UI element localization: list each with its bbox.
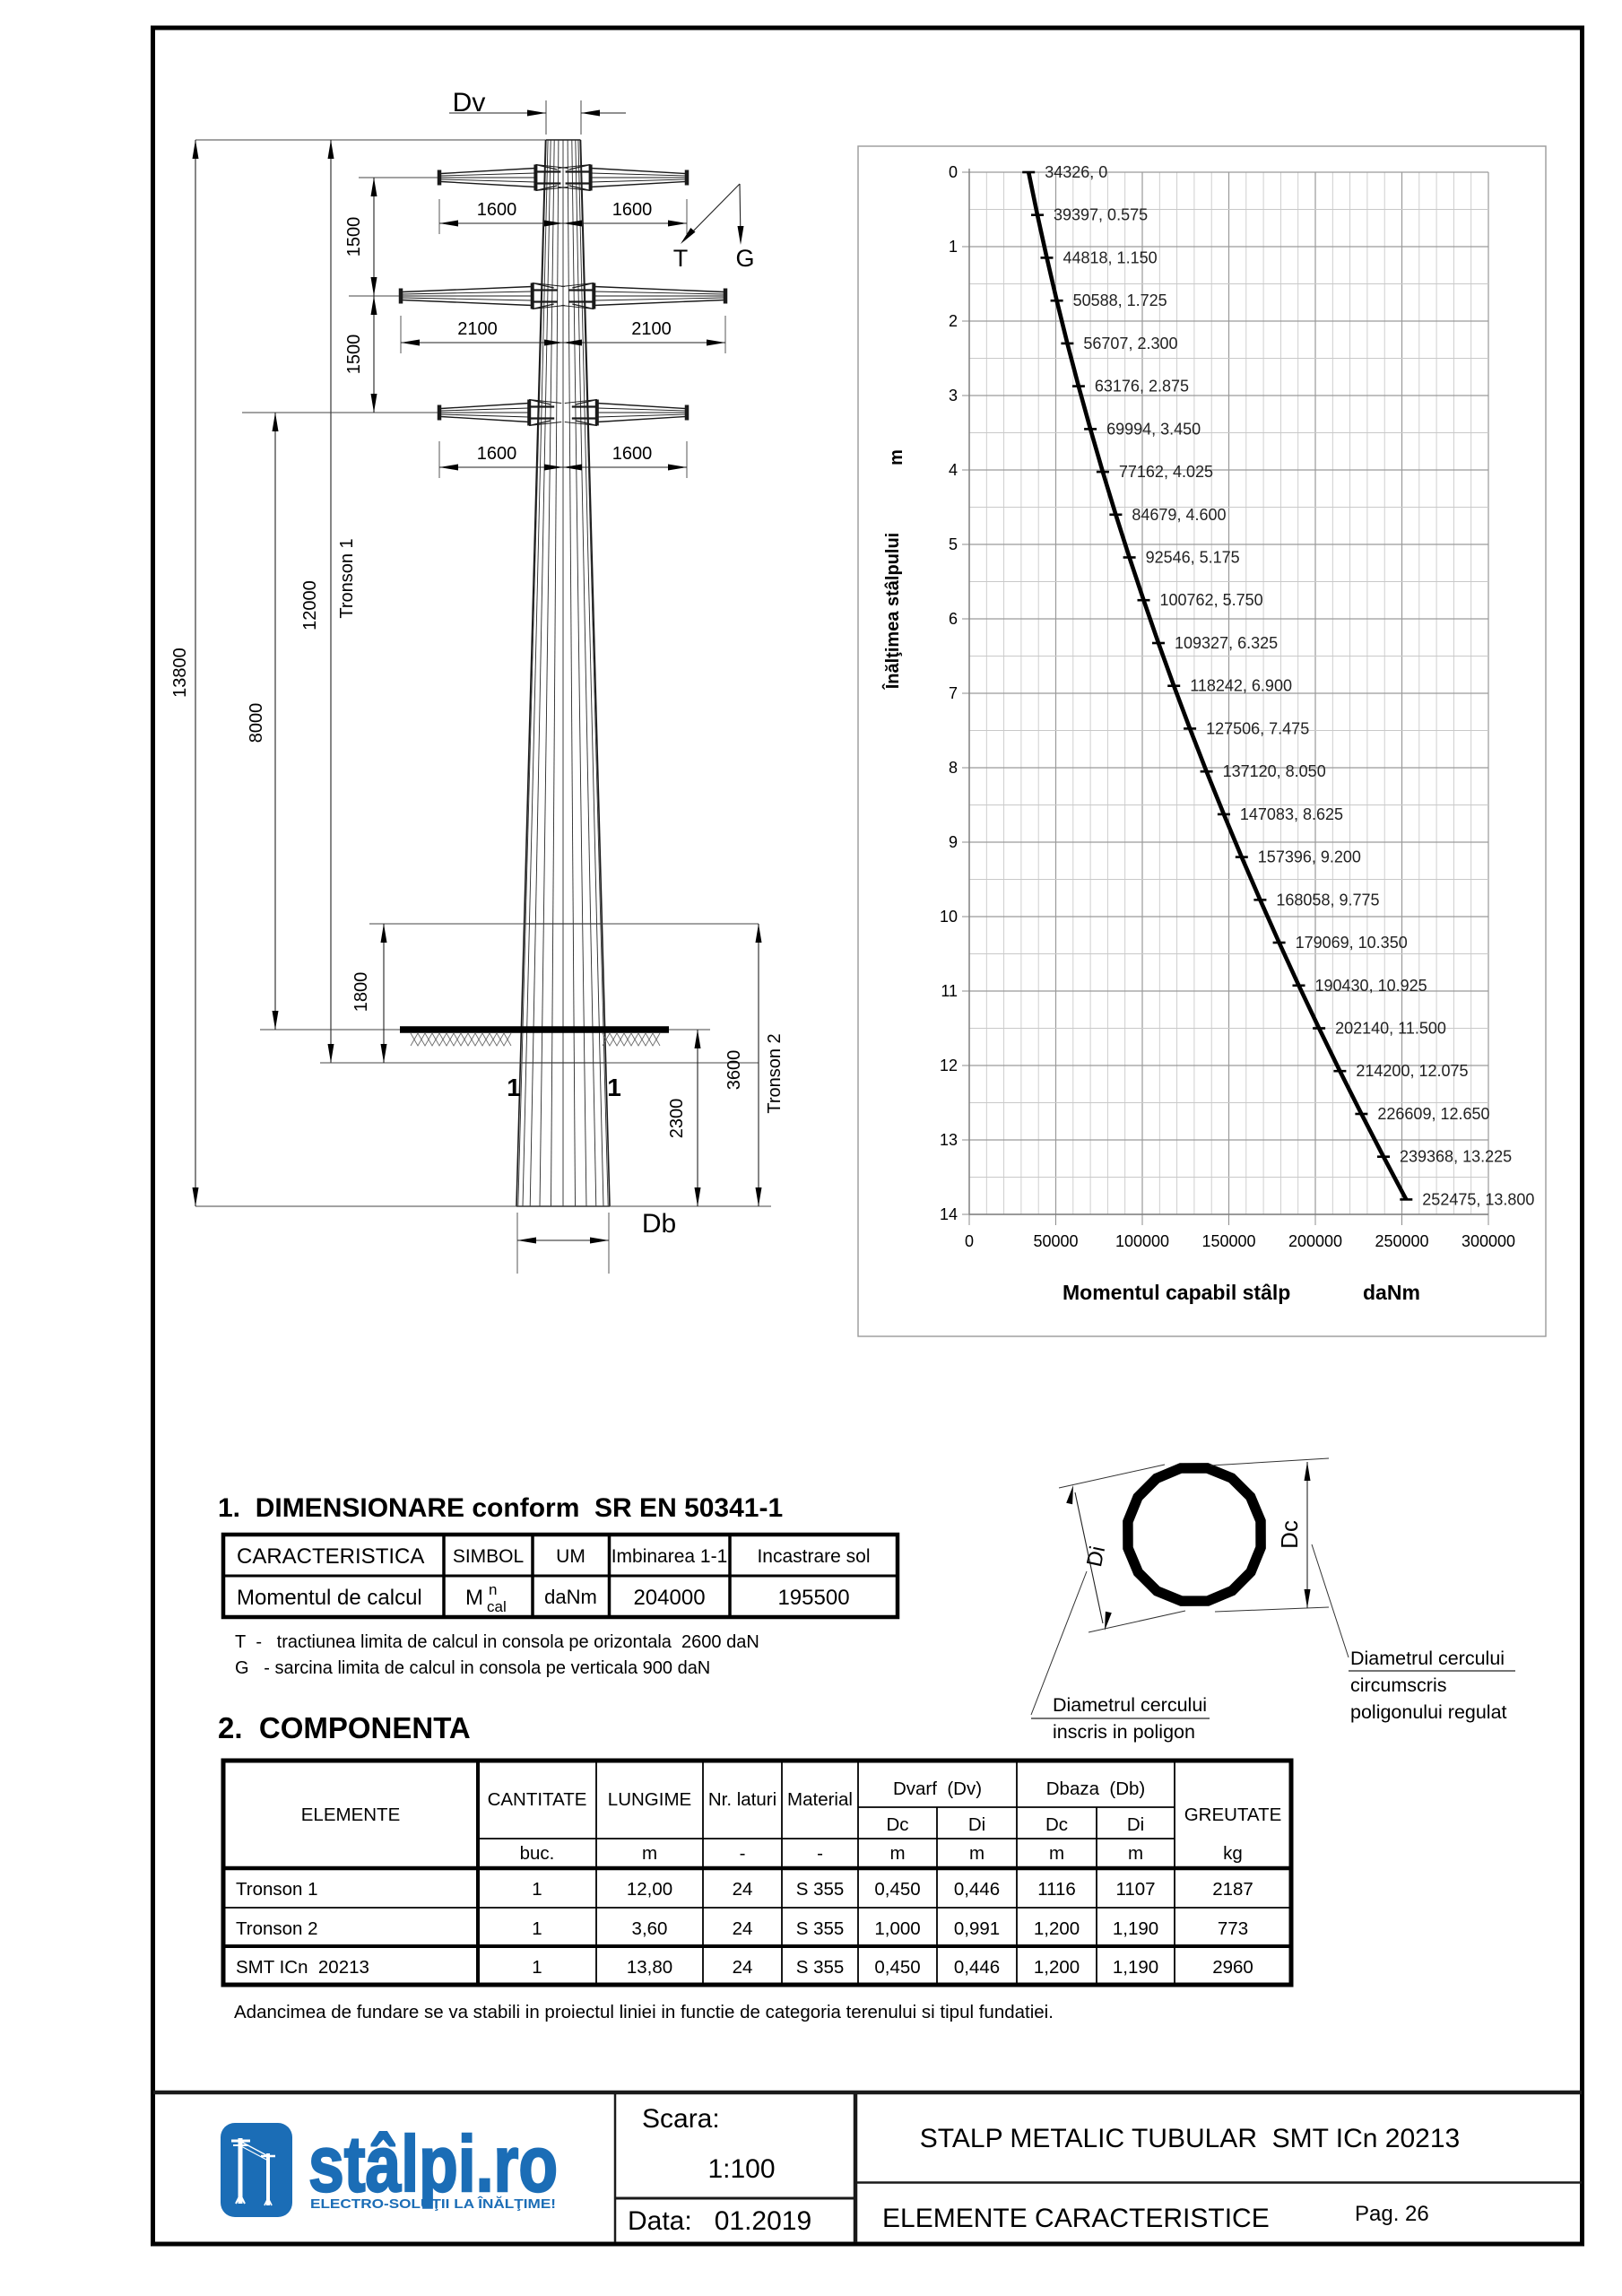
svg-text:inscris in poligon: inscris in poligon [1053,1721,1195,1743]
svg-text:50588, 1.725: 50588, 1.725 [1073,291,1167,309]
svg-text:m: m [887,449,906,465]
svg-text:10: 10 [940,908,958,926]
svg-text:300000: 300000 [1462,1232,1515,1250]
svg-text:0,446: 0,446 [954,1957,1000,1978]
svg-text:13,80: 13,80 [627,1957,672,1978]
svg-text:T - tractiunea limita de ca: T - tractiunea limita de calcul in conso… [235,1632,759,1652]
svg-text:1: 1 [532,1918,542,1939]
svg-text:137120, 8.050: 137120, 8.050 [1223,762,1326,780]
svg-text:12000: 12000 [300,580,320,631]
svg-text:ELEMENTE: ELEMENTE [301,1805,401,1825]
svg-text:773: 773 [1218,1918,1248,1939]
svg-text:8: 8 [949,759,958,777]
svg-text:stâlpi.ro: stâlpi.ro [308,2119,558,2208]
svg-text:1: 1 [607,1074,621,1101]
svg-text:168058, 9.775: 168058, 9.775 [1276,891,1379,909]
svg-text:UM: UM [556,1546,585,1567]
svg-text:CANTITATE: CANTITATE [488,1789,587,1810]
svg-text:1: 1 [532,1957,542,1978]
svg-text:Imbinarea 1-1: Imbinarea 1-1 [612,1546,728,1567]
svg-text:44818, 1.150: 44818, 1.150 [1063,248,1158,266]
svg-text:1:100: 1:100 [707,2154,775,2184]
svg-text:5: 5 [949,535,958,553]
svg-text:24: 24 [733,1879,753,1900]
svg-text:4: 4 [949,461,958,479]
svg-text:2100: 2100 [631,319,672,339]
svg-text:1: 1 [532,1879,542,1900]
svg-text:13800: 13800 [170,648,190,698]
svg-text:1,000: 1,000 [874,1918,920,1939]
svg-text:9: 9 [949,833,958,851]
svg-text:Db: Db [642,1209,676,1239]
svg-text:0,450: 0,450 [874,1879,920,1900]
svg-text:2300: 2300 [667,1099,687,1139]
svg-text:Dc: Dc [1045,1814,1068,1835]
svg-text:8000: 8000 [247,703,266,744]
svg-text:M: M [465,1586,483,1610]
svg-text:214200, 12.075: 214200, 12.075 [1356,1062,1468,1080]
svg-text:LUNGIME: LUNGIME [608,1789,691,1810]
svg-text:Data: 01.2019: Data: 01.2019 [628,2206,811,2236]
svg-text:Incastrare sol: Incastrare sol [757,1546,870,1567]
svg-text:buc.: buc. [520,1843,555,1864]
svg-text:Material: Material [787,1789,853,1810]
svg-text:Dbaza (Db): Dbaza (Db) [1046,1779,1146,1799]
svg-text:Momentul de calcul: Momentul de calcul [237,1586,422,1610]
svg-text:Diametrul cercului: Diametrul cercului [1053,1694,1207,1716]
svg-text:1107: 1107 [1115,1879,1155,1900]
svg-text:Nr. laturi: Nr. laturi [708,1789,776,1810]
svg-text:34326, 0: 34326, 0 [1045,163,1107,181]
svg-text:SMT ICn 20213: SMT ICn 20213 [236,1957,369,1978]
svg-text:-: - [740,1843,746,1864]
svg-text:179069, 10.350: 179069, 10.350 [1296,934,1408,952]
svg-text:Pag. 26: Pag. 26 [1355,2202,1429,2226]
svg-text:CARACTERISTICA: CARACTERISTICA [237,1544,424,1569]
svg-text:202140, 11.500: 202140, 11.500 [1335,1020,1446,1038]
svg-text:2960: 2960 [1212,1957,1253,1978]
svg-text:204000: 204000 [633,1586,705,1610]
svg-text:kg: kg [1223,1843,1243,1864]
svg-text:147083, 8.625: 147083, 8.625 [1240,805,1343,823]
svg-text:SIMBOL: SIMBOL [453,1546,524,1567]
svg-text:m: m [642,1843,657,1864]
svg-text:12,00: 12,00 [627,1879,672,1900]
svg-text:Scara:: Scara: [642,2104,720,2134]
svg-text:13: 13 [940,1131,958,1149]
svg-text:1600: 1600 [612,444,653,464]
svg-text:G: G [735,245,754,272]
svg-text:1800: 1800 [351,972,371,1013]
svg-text:0,991: 0,991 [954,1918,1000,1939]
svg-text:poligonului regulat: poligonului regulat [1350,1701,1507,1723]
svg-text:circumscris: circumscris [1350,1674,1447,1696]
svg-text:1: 1 [507,1074,521,1101]
svg-text:m: m [1128,1843,1143,1864]
svg-text:63176, 2.875: 63176, 2.875 [1095,378,1189,396]
svg-text:m: m [1049,1843,1064,1864]
svg-text:39397, 0.575: 39397, 0.575 [1054,206,1148,224]
svg-text:226609, 12.650: 226609, 12.650 [1377,1105,1489,1123]
svg-text:6: 6 [949,610,958,628]
svg-text:S 355: S 355 [796,1879,845,1900]
svg-text:12: 12 [940,1057,958,1074]
svg-text:1600: 1600 [477,200,517,220]
svg-text:GREUTATE: GREUTATE [1184,1805,1282,1825]
svg-text:Tronson 1: Tronson 1 [337,538,357,618]
svg-text:84679, 4.600: 84679, 4.600 [1132,506,1226,524]
svg-text:STALP METALIC TUBULAR SMT ICn: STALP METALIC TUBULAR SMT ICn 20213 [920,2124,1460,2153]
svg-text:1116: 1116 [1037,1879,1076,1900]
svg-text:0,450: 0,450 [874,1957,920,1978]
svg-text:Tronson 1: Tronson 1 [236,1879,318,1900]
svg-text:195500: 195500 [777,1586,849,1610]
svg-text:150000: 150000 [1201,1232,1255,1250]
svg-text:G - sarcina limita de calcul: G - sarcina limita de calcul in consola … [235,1658,710,1678]
svg-text:250000: 250000 [1375,1232,1428,1250]
svg-text:157396, 9.200: 157396, 9.200 [1258,848,1361,866]
svg-text:2100: 2100 [457,319,498,339]
svg-text:Dc: Dc [1276,1520,1303,1549]
svg-text:77162, 4.025: 77162, 4.025 [1119,463,1213,481]
svg-text:2. COMPONENTA: 2. COMPONENTA [218,1711,471,1744]
svg-text:24: 24 [733,1918,753,1939]
svg-text:2187: 2187 [1212,1879,1253,1900]
svg-text:Înălţimea stâlpului: Înălţimea stâlpului [881,533,903,690]
svg-text:m: m [969,1843,984,1864]
svg-text:1. DIMENSIONARE conform SR E: 1. DIMENSIONARE conform SR EN 50341-1 [218,1493,783,1523]
svg-text:100000: 100000 [1115,1232,1169,1250]
svg-text:cal: cal [487,1598,507,1615]
svg-text:ELEMENTE CARACTERISTICE: ELEMENTE CARACTERISTICE [882,2204,1270,2233]
svg-text:11: 11 [941,982,958,1000]
svg-text:3,60: 3,60 [632,1918,668,1939]
svg-text:Tronson 2: Tronson 2 [236,1918,318,1939]
svg-text:3600: 3600 [724,1050,744,1091]
svg-text:Dc: Dc [886,1814,908,1835]
svg-text:1500: 1500 [344,217,364,257]
svg-text:Diametrul cercului: Diametrul cercului [1350,1648,1505,1669]
svg-text:252475, 13.800: 252475, 13.800 [1422,1190,1534,1208]
svg-text:-: - [817,1843,823,1864]
svg-text:Dv: Dv [453,88,486,117]
svg-text:Di: Di [968,1814,985,1835]
svg-text:7: 7 [949,684,958,702]
svg-text:1,200: 1,200 [1034,1918,1080,1939]
svg-text:239368, 13.225: 239368, 13.225 [1400,1148,1512,1166]
svg-text:Tronson 2: Tronson 2 [765,1033,785,1113]
svg-text:200000: 200000 [1288,1232,1342,1250]
svg-text:0: 0 [949,163,958,181]
svg-text:S 355: S 355 [796,1957,845,1978]
svg-text:m: m [889,1843,905,1864]
svg-text:0,446: 0,446 [954,1879,1000,1900]
svg-text:69994, 3.450: 69994, 3.450 [1106,420,1201,438]
svg-text:daNm: daNm [544,1586,597,1608]
svg-text:24: 24 [733,1957,753,1978]
svg-text:1500: 1500 [344,335,364,375]
svg-text:Momentul capabil stâlp: Momentul capabil stâlp [1063,1281,1290,1304]
svg-text:14: 14 [940,1205,958,1223]
svg-text:109327, 6.325: 109327, 6.325 [1175,634,1278,652]
svg-text:Dvarf (Dv): Dvarf (Dv) [893,1779,982,1799]
svg-text:1,190: 1,190 [1113,1957,1158,1978]
svg-text:n: n [489,1581,497,1598]
svg-text:3: 3 [949,387,958,404]
svg-text:118242, 6.900: 118242, 6.900 [1190,677,1292,695]
svg-text:Di: Di [1127,1814,1144,1835]
svg-text:100762, 5.750: 100762, 5.750 [1160,591,1263,609]
svg-text:190430, 10.925: 190430, 10.925 [1315,977,1427,995]
svg-text:1: 1 [949,238,958,256]
svg-text:Adancimea de fundare se va sta: Adancimea de fundare se va stabili in pr… [234,2002,1054,2022]
svg-text:1,190: 1,190 [1113,1918,1158,1939]
svg-text:50000: 50000 [1033,1232,1078,1250]
svg-text:T: T [673,245,689,272]
svg-text:0: 0 [965,1232,974,1250]
svg-text:daNm: daNm [1363,1281,1420,1304]
svg-text:S 355: S 355 [796,1918,845,1939]
svg-text:127506, 7.475: 127506, 7.475 [1206,719,1309,737]
svg-text:1600: 1600 [477,444,517,464]
svg-text:1,200: 1,200 [1034,1957,1080,1978]
svg-text:56707, 2.300: 56707, 2.300 [1083,335,1177,352]
svg-text:1600: 1600 [612,200,653,220]
svg-text:2: 2 [949,312,958,330]
svg-text:ELECTRO-SOLUŢII LA ÎNĂLŢIME!: ELECTRO-SOLUŢII LA ÎNĂLŢIME! [310,2196,556,2212]
svg-text:92546, 5.175: 92546, 5.175 [1146,549,1240,567]
